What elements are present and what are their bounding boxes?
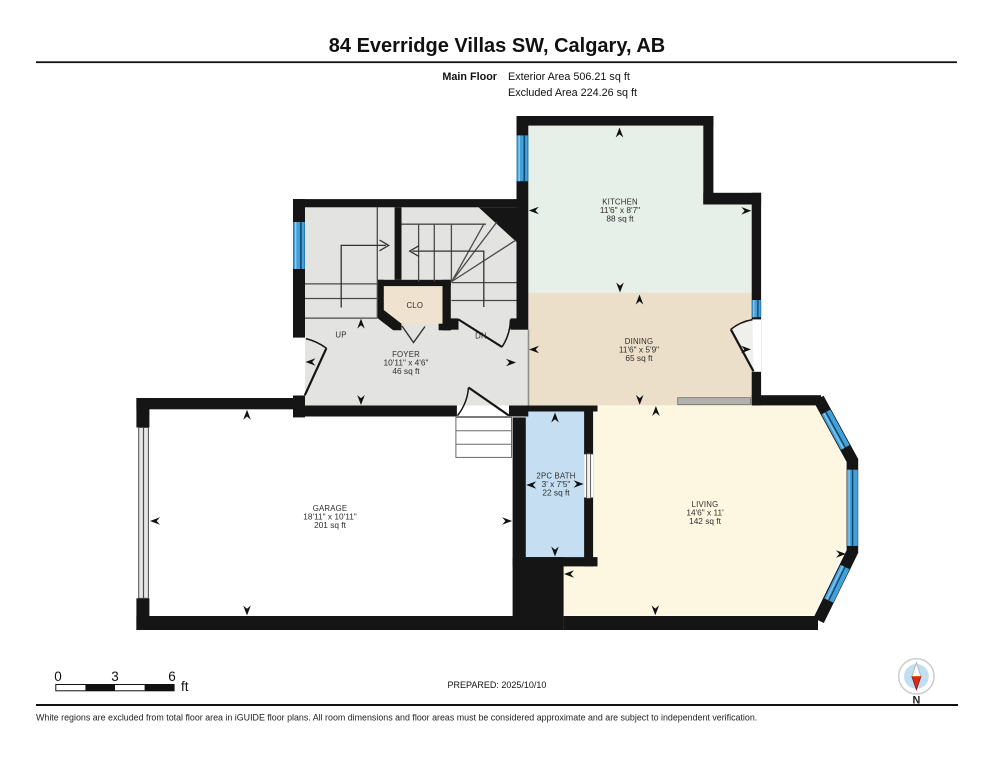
svg-text:ft: ft <box>181 679 189 694</box>
svg-text:PREPARED: 2025/10/10: PREPARED: 2025/10/10 <box>448 680 547 690</box>
svg-text:22 sq ft: 22 sq ft <box>542 487 570 497</box>
svg-text:201 sq ft: 201 sq ft <box>314 520 347 530</box>
svg-text:Main Floor: Main Floor <box>442 71 497 83</box>
svg-text:84 Everridge Villas SW, Calgar: 84 Everridge Villas SW, Calgary, AB <box>329 35 665 57</box>
svg-text:142 sq ft: 142 sq ft <box>689 516 722 526</box>
svg-text:6: 6 <box>168 669 176 684</box>
svg-text:Excluded Area 224.26 sq ft: Excluded Area 224.26 sq ft <box>508 87 637 99</box>
svg-text:65 sq ft: 65 sq ft <box>625 353 653 363</box>
svg-text:0: 0 <box>54 669 62 684</box>
svg-text:CLO: CLO <box>406 301 423 310</box>
svg-text:88 sq ft: 88 sq ft <box>606 213 634 223</box>
svg-text:Exterior Area 506.21 sq ft: Exterior Area 506.21 sq ft <box>508 71 630 83</box>
svg-text:White regions are excluded fro: White regions are excluded from total fl… <box>36 713 757 723</box>
svg-text:46 sq ft: 46 sq ft <box>392 366 420 376</box>
svg-text:DN: DN <box>475 331 487 340</box>
svg-text:UP: UP <box>335 331 346 340</box>
svg-text:3: 3 <box>111 669 119 684</box>
